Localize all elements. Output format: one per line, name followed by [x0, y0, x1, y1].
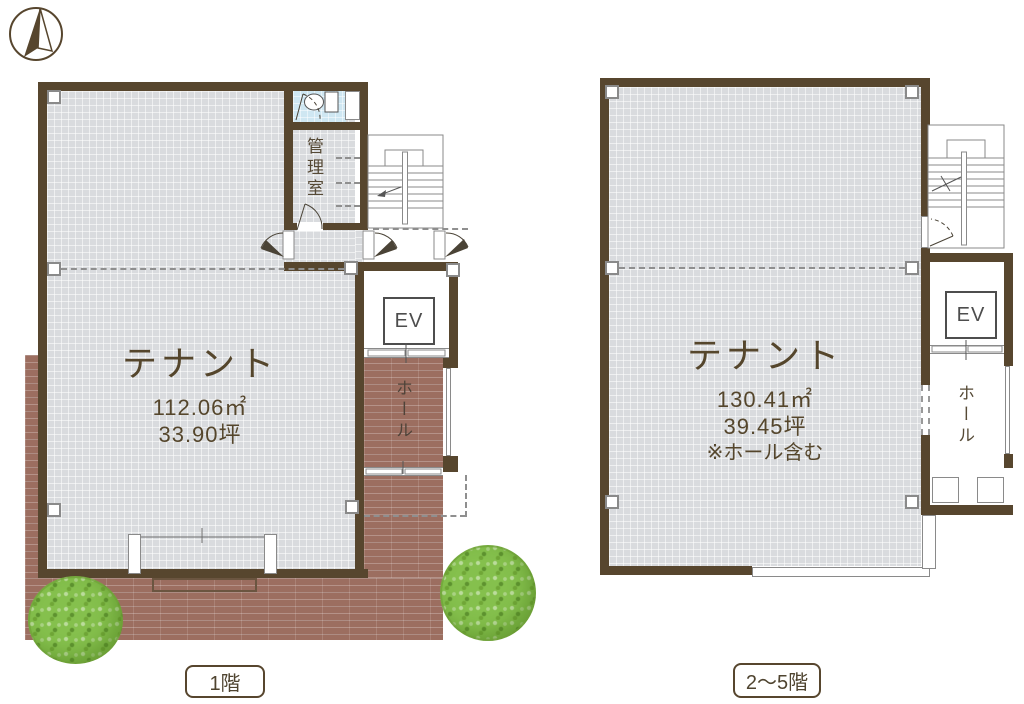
plan-linework [0, 0, 1024, 704]
staircase-1f [368, 135, 443, 228]
office-door-swing [297, 204, 323, 231]
caption-floor-1: 1階 [185, 665, 265, 698]
caption-floor-1-text: 1階 [209, 667, 240, 696]
exterior-door-1f [434, 231, 468, 259]
caption-floor-2-5: 2〜5階 [733, 663, 821, 698]
staircase-2-5f [928, 125, 1004, 248]
elevator-door-2-5f [932, 340, 1002, 360]
toilet-fixture [305, 92, 339, 112]
elevator-door-1f [368, 343, 445, 363]
floor-plan-canvas: EV 管理室 ホール テナント 112.06㎡ 33.90坪 UP [0, 0, 1024, 704]
caption-floor-2-5-text: 2〜5階 [746, 666, 808, 695]
vestibule-door-left [261, 231, 294, 259]
vestibule-door-right [363, 231, 397, 259]
hall-entrance-door-1f [366, 461, 441, 474]
storefront-glass [141, 528, 264, 543]
